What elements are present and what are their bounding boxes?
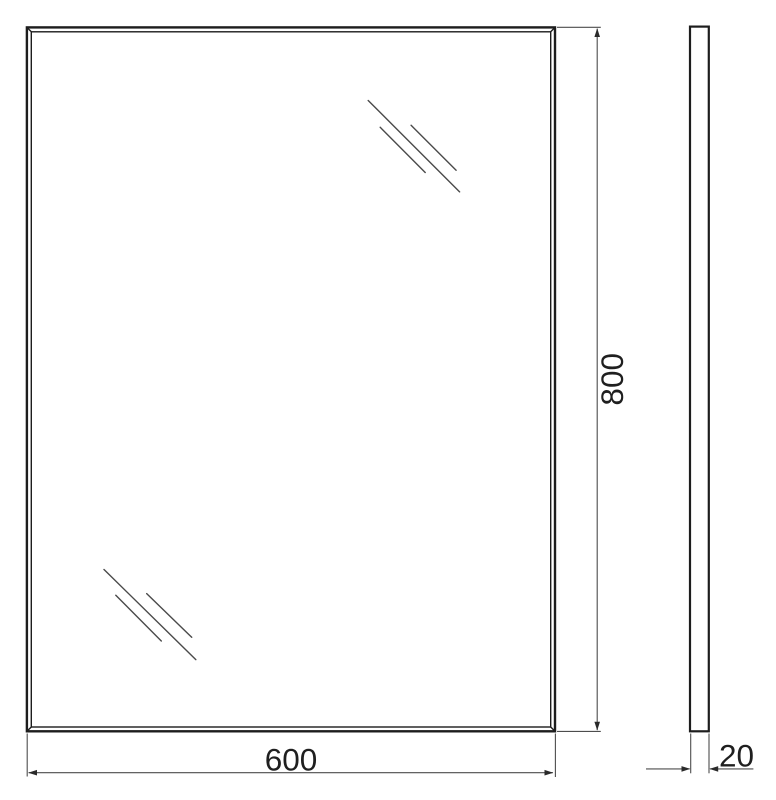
svg-text:20: 20 (719, 738, 754, 774)
svg-text:600: 600 (265, 742, 318, 778)
svg-text:800: 800 (594, 353, 630, 406)
